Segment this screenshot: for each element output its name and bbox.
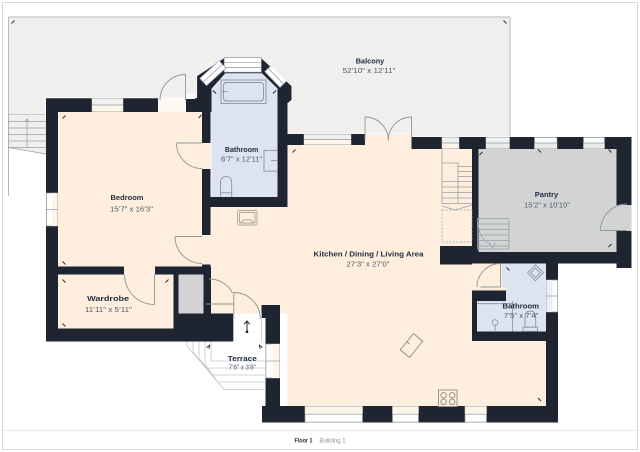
- svg-text:Bathroom: Bathroom: [225, 145, 259, 154]
- svg-text:15’7" x 16’3": 15’7" x 16’3": [110, 205, 153, 214]
- svg-text:Floor 1: Floor 1: [295, 437, 313, 444]
- svg-text:Bedroom: Bedroom: [111, 193, 144, 202]
- svg-text:6’7" x 12’11": 6’7" x 12’11": [221, 155, 262, 164]
- svg-text:27’3" x 27’0": 27’3" x 27’0": [347, 260, 390, 269]
- svg-text:7’6" x 3’8": 7’6" x 3’8": [229, 363, 256, 372]
- svg-text:52’10" x 12’11": 52’10" x 12’11": [343, 66, 396, 75]
- svg-text:11’11" x 5’11": 11’11" x 5’11": [85, 305, 132, 314]
- svg-text:7’5" x 7’4": 7’5" x 7’4": [504, 311, 539, 320]
- svg-text:Balcony: Balcony: [356, 56, 385, 65]
- svg-text:Building 1: Building 1: [319, 437, 345, 444]
- svg-text:Wardrobe: Wardrobe: [87, 294, 129, 303]
- svg-text:Kitchen / Dining / Living Area: Kitchen / Dining / Living Area: [314, 249, 425, 258]
- svg-text:Bathroom: Bathroom: [503, 301, 540, 310]
- svg-text:Pantry: Pantry: [535, 190, 559, 199]
- svg-text:15’2" x 10’10": 15’2" x 10’10": [524, 201, 570, 210]
